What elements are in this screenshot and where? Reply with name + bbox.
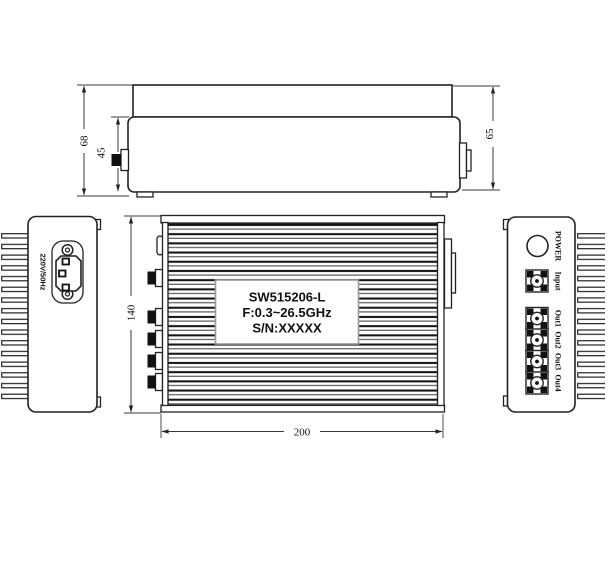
top-view-power-inlet-edge [460,143,472,178]
front-out3-connector [148,353,163,370]
power-spec-text: 220V/50Hz [39,253,48,290]
top-view-body [128,117,460,192]
front-out4-connector [148,374,163,391]
right-side-view: POWER Input Out1 Out2 [504,217,606,412]
front-left-wall [163,223,169,406]
front-power-inlet-edge [445,239,456,308]
top-view-foot-right [431,192,447,197]
front-view: 140 200 [124,216,456,439]
nameplate-label: SW515206-L F:0.3~26.5GHz S/N:XXXXX [216,280,359,344]
ac-power-inlet [52,241,83,303]
device-drawing-svg: 68 45 65 [0,0,610,563]
left-side-view: 220V/50Hz [1,217,101,413]
nameplate-model: SW515206-L [249,290,326,305]
left-view-fins [1,233,29,404]
dim-65-text: 65 [484,128,496,140]
out4-label: Out4 [554,374,563,391]
front-out2-connector [148,331,163,348]
dimension-200: 200 [161,414,443,439]
top-view-foot-left [137,192,153,197]
out1-label: Out1 [554,310,563,327]
out2-label: Out2 [554,331,563,348]
sma-connector-out3 [526,351,548,373]
dimension-68: 68 [77,85,134,196]
input-label: Input [554,271,563,290]
front-right-wall [438,223,445,406]
front-input-connector [148,270,163,287]
front-top-rail [161,216,445,224]
sma-connector-out4 [526,372,548,394]
technical-drawing-canvas: 68 45 65 [0,0,610,563]
sma-connector-input [526,270,548,292]
top-view: 68 45 65 [77,85,500,197]
out3-label: Out3 [554,353,563,370]
dim-140-text: 140 [126,304,138,321]
right-view-fins [577,233,605,404]
power-indicator [527,236,548,257]
top-view-lid [133,85,452,117]
dim-68-text: 68 [79,135,91,147]
top-view-rf-connector [112,150,129,171]
nameplate-frequency: F:0.3~26.5GHz [242,305,332,320]
sma-connector-out2 [526,329,548,351]
dim-200-text: 200 [294,427,311,439]
dim-45-text: 45 [96,147,108,159]
front-out1-connector [148,309,163,326]
sma-connector-out1 [526,308,548,330]
power-label: POWER [554,231,563,261]
nameplate-serial: S/N:XXXXX [252,321,322,336]
